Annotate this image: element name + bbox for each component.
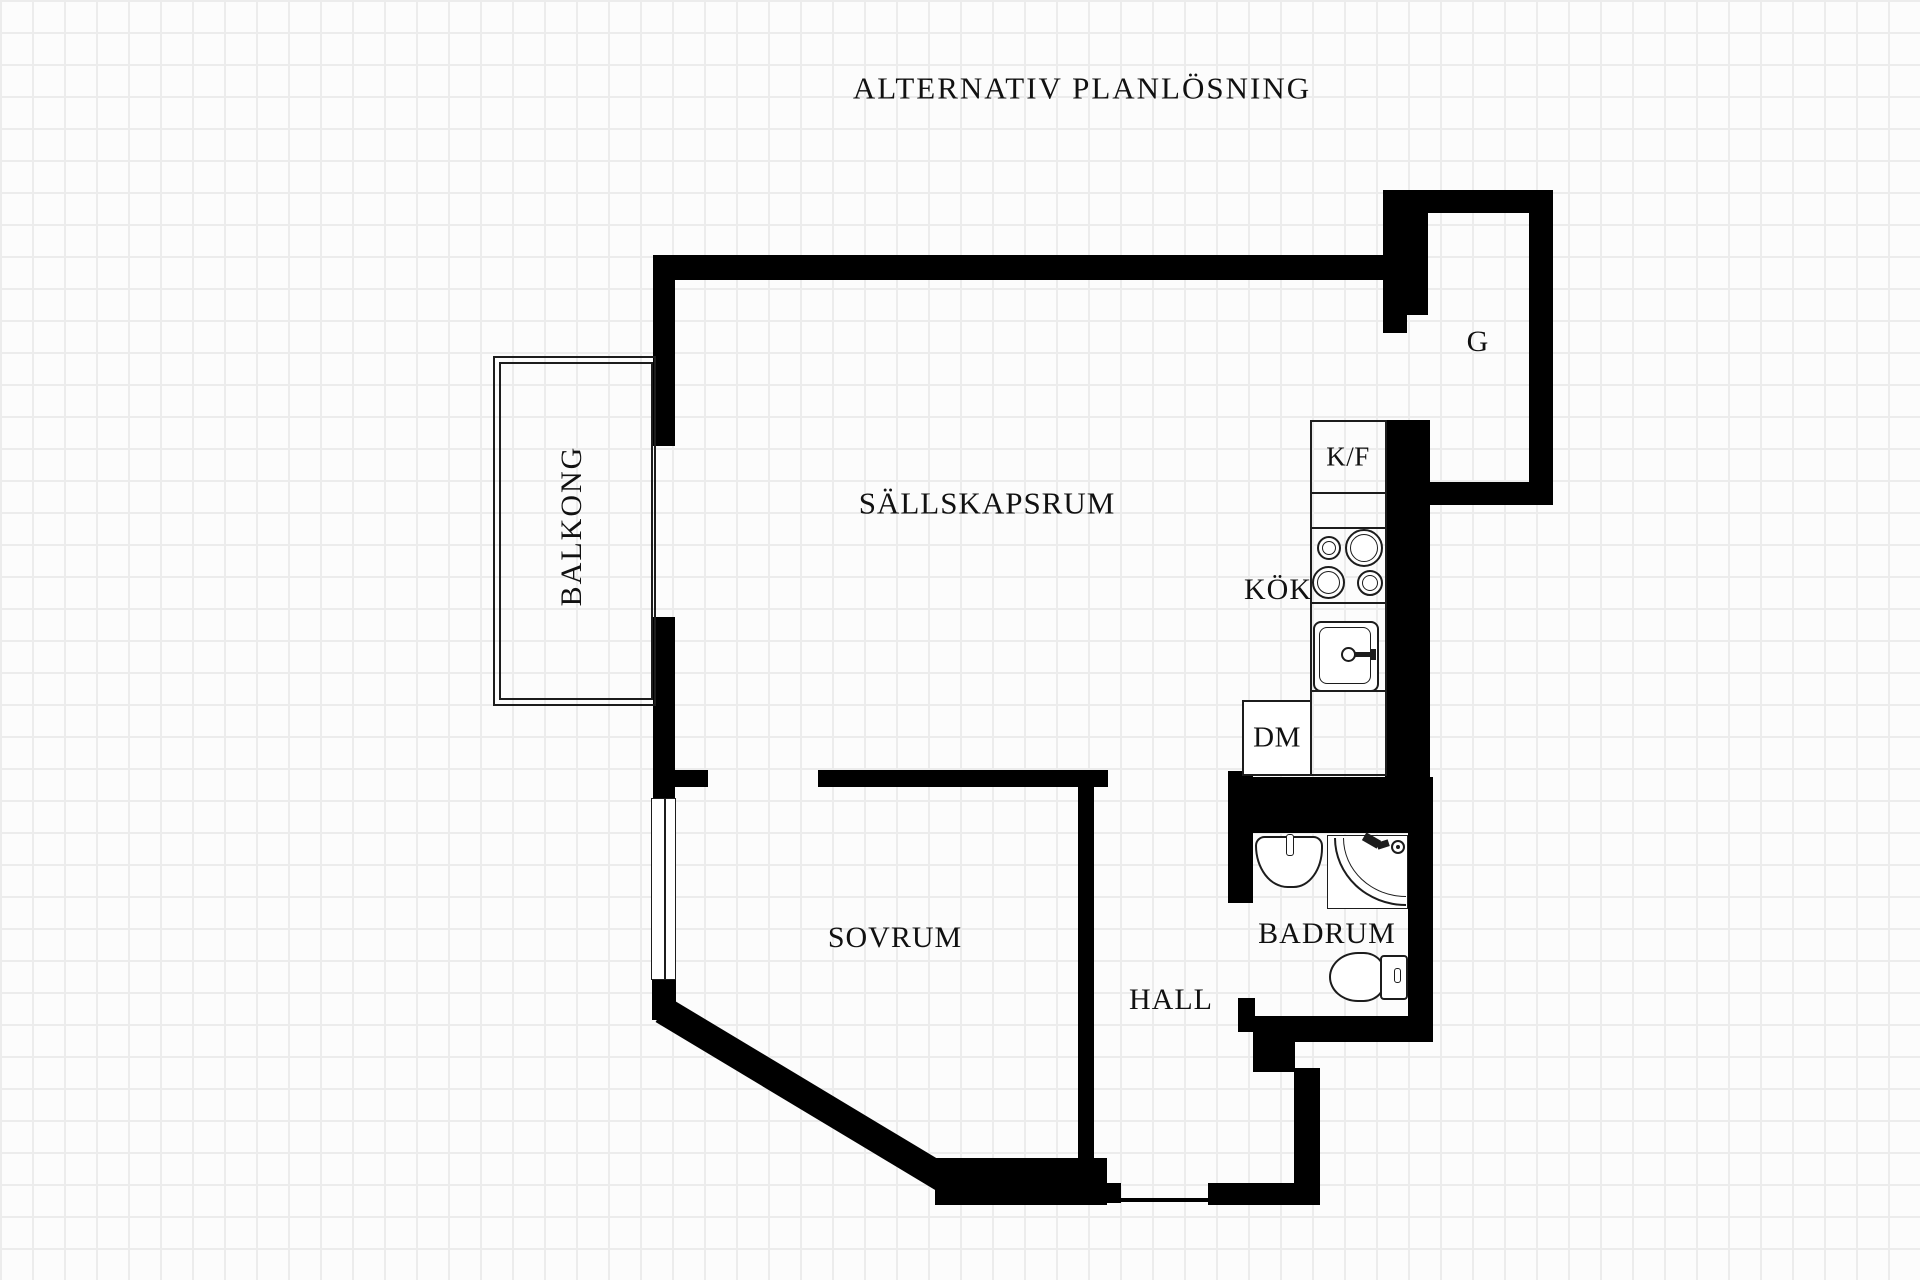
hall-label: HALL (1129, 985, 1213, 1015)
stove-burner-icon (1317, 536, 1341, 560)
wall-bedroom-top (818, 770, 1108, 787)
closet-label: G (1467, 327, 1490, 357)
wall-closet-right (1529, 190, 1553, 505)
wall-bedroom-top-left-stub (653, 770, 708, 787)
wall-closet-bottom (1430, 482, 1553, 505)
bathroom-tap-icon (1286, 834, 1294, 856)
kitchen-faucet-tip (1371, 649, 1376, 660)
toilet-bowl-icon (1329, 952, 1387, 1002)
wall-closet-left-block (1383, 190, 1428, 315)
kitchen-counter (1310, 420, 1387, 776)
wall-entry-right (1208, 1183, 1320, 1205)
window-mullion-line (664, 799, 666, 979)
dishwasher-label: DM (1253, 724, 1301, 753)
wall-bathroom-right (1408, 833, 1433, 1040)
counter-divider-2 (1310, 527, 1387, 529)
wall-bedroom-hall-divider (1078, 787, 1094, 1203)
wall-left-upper (653, 255, 675, 446)
wall-diagonal (656, 998, 953, 1192)
bedroom-window (651, 798, 676, 980)
wall-hall-right (1294, 1068, 1320, 1186)
wall-closet-left-narrow (1383, 313, 1407, 333)
wall-kitchen-bath-divider (1228, 777, 1433, 833)
shower-head-icon (1391, 840, 1405, 854)
counter-divider-3 (1310, 602, 1387, 604)
balcony-label: BALKONG (557, 446, 587, 607)
stove-burner-icon (1312, 566, 1345, 599)
bathroom-label: BADRUM (1258, 919, 1396, 949)
wall-top (653, 255, 1390, 280)
entrance-threshold-line (1121, 1198, 1208, 1202)
kitchen-sink-icon (1313, 621, 1379, 692)
stove-burner-icon (1345, 529, 1383, 567)
bedroom-label: SOVRUM (828, 923, 962, 953)
kitchen-label: KÖK (1244, 575, 1312, 605)
toilet-button-icon (1394, 968, 1401, 983)
wall-entry-left-stub (1095, 1183, 1121, 1203)
shower-head-dot (1396, 845, 1400, 849)
living-room-label: SÄLLSKAPSRUM (859, 488, 1116, 519)
wall-kitchen-right (1385, 420, 1430, 780)
counter-divider-1 (1310, 492, 1387, 494)
fridge-freezer-label: K/F (1326, 444, 1370, 471)
plan-title: ALTERNATIV PLANLÖSNING (853, 73, 1311, 104)
floor-plan: ALTERNATIV PLANLÖSNING BALKONG K/F (0, 0, 1920, 1280)
wall-bathroom-bottom (1253, 1016, 1433, 1042)
stove-burner-icon (1357, 570, 1383, 596)
